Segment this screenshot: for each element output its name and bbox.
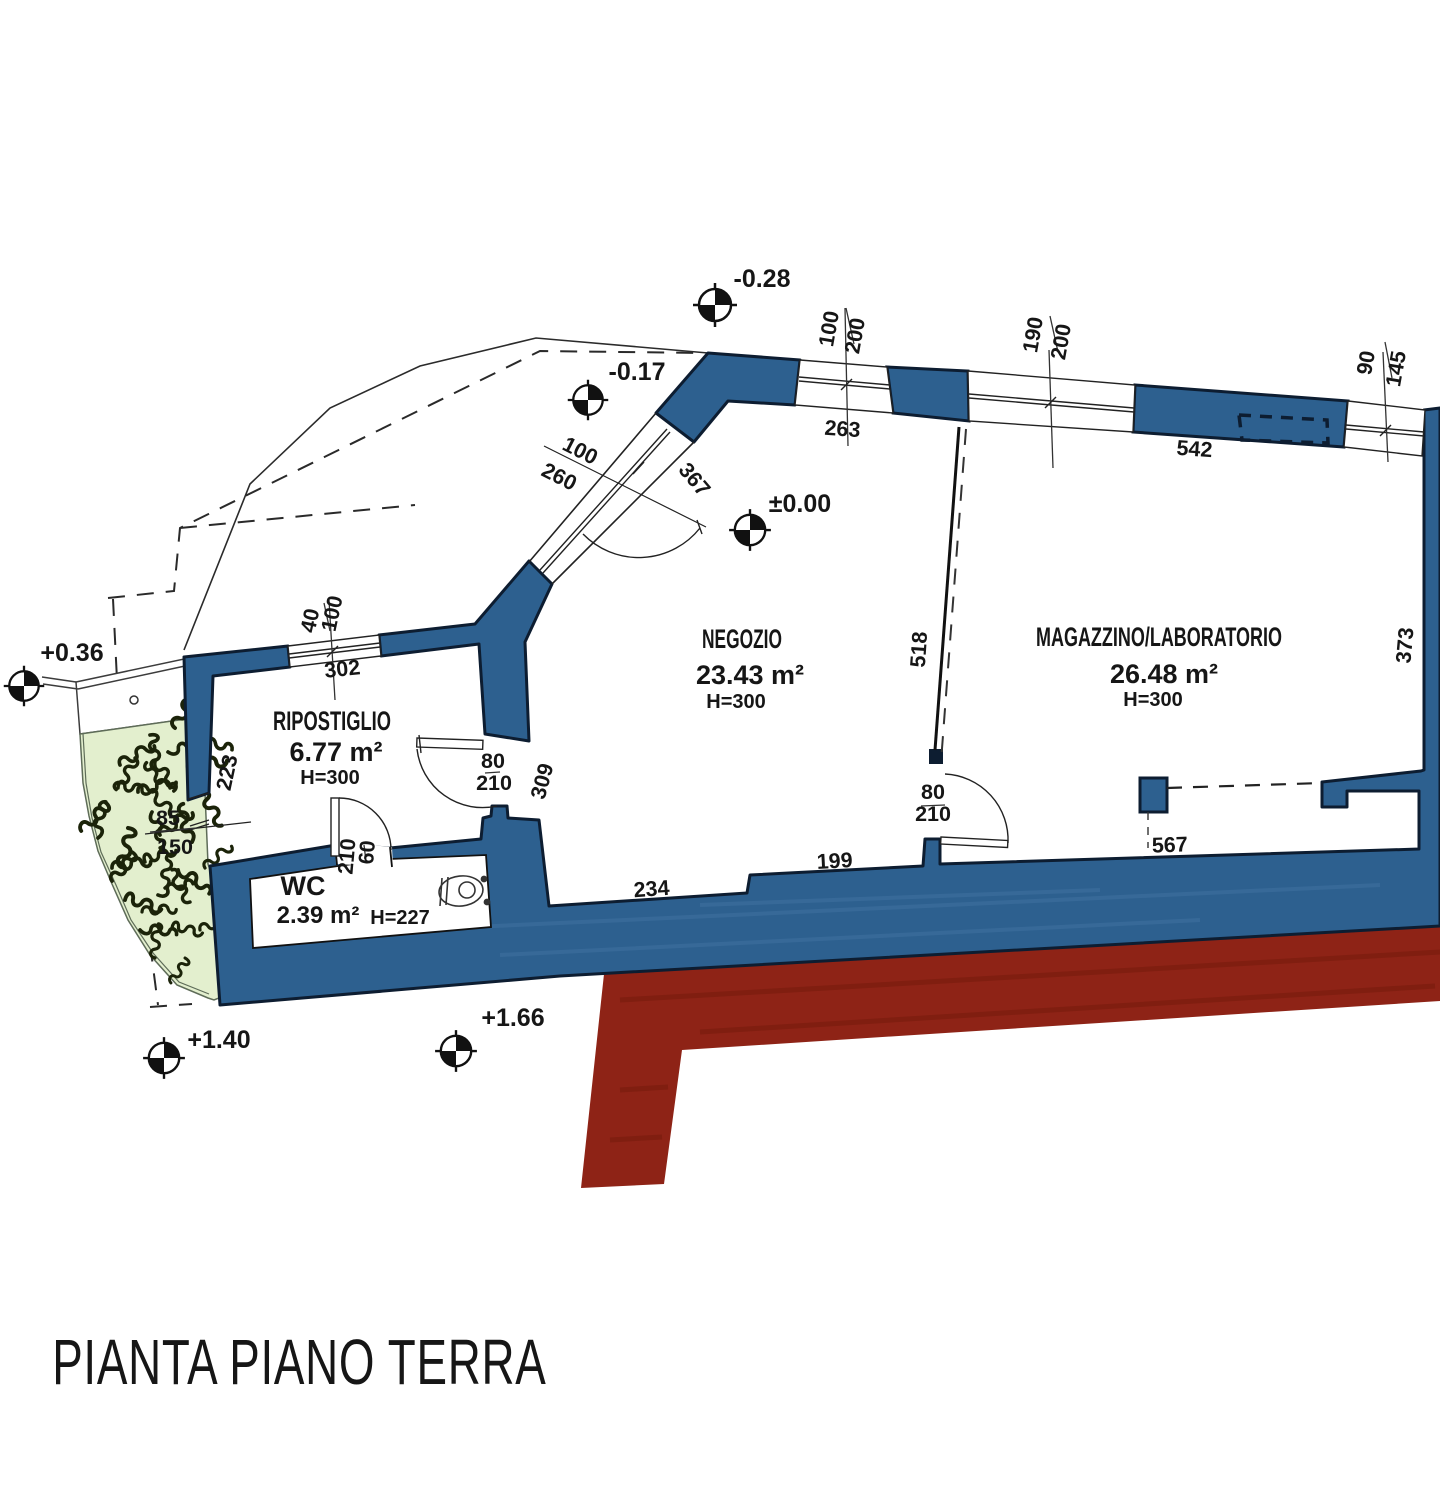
- svg-text:542: 542: [1176, 436, 1214, 462]
- svg-text:NEGOZIO: NEGOZIO: [702, 624, 782, 654]
- svg-text:26.48 m²: 26.48 m²: [1110, 659, 1218, 689]
- svg-text:H=300: H=300: [1123, 689, 1183, 711]
- svg-text:-0.28: -0.28: [734, 265, 791, 293]
- svg-text:85: 85: [156, 806, 180, 830]
- svg-text:80: 80: [481, 749, 505, 773]
- svg-text:-0.17: -0.17: [609, 358, 666, 386]
- svg-text:6.77 m²: 6.77 m²: [289, 737, 382, 767]
- svg-text:H=300: H=300: [706, 691, 766, 713]
- svg-text:MAGAZZINO/LABORATORIO: MAGAZZINO/LABORATORIO: [1036, 622, 1282, 652]
- svg-text:40: 40: [296, 606, 324, 634]
- svg-text:150: 150: [157, 835, 193, 859]
- svg-text:90: 90: [1352, 349, 1380, 377]
- svg-text:H=300: H=300: [300, 767, 360, 789]
- svg-text:210: 210: [476, 771, 512, 795]
- svg-text:518: 518: [906, 631, 932, 669]
- svg-text:234: 234: [633, 876, 671, 902]
- svg-text:+1.66: +1.66: [481, 1004, 544, 1032]
- svg-text:199: 199: [816, 848, 853, 874]
- svg-text:WC: WC: [281, 871, 326, 901]
- svg-text:±0.00: ±0.00: [769, 490, 831, 518]
- svg-text:80: 80: [921, 780, 945, 804]
- svg-text:PIANTA PIANO TERRA: PIANTA PIANO TERRA: [52, 1326, 546, 1397]
- svg-text:263: 263: [824, 416, 862, 442]
- svg-text:373: 373: [1392, 626, 1419, 664]
- svg-text:210: 210: [334, 837, 361, 875]
- svg-text:23.43 m²: 23.43 m²: [696, 660, 804, 690]
- svg-text:RIPOSTIGLIO: RIPOSTIGLIO: [273, 706, 391, 736]
- svg-text:+1.40: +1.40: [187, 1026, 250, 1054]
- svg-text:+0.36: +0.36: [40, 639, 103, 667]
- svg-text:2.39 m²: 2.39 m²: [277, 902, 360, 929]
- svg-text:210: 210: [915, 802, 951, 826]
- svg-text:302: 302: [323, 655, 361, 683]
- svg-text:567: 567: [1151, 832, 1188, 857]
- svg-text:H=227: H=227: [370, 907, 430, 929]
